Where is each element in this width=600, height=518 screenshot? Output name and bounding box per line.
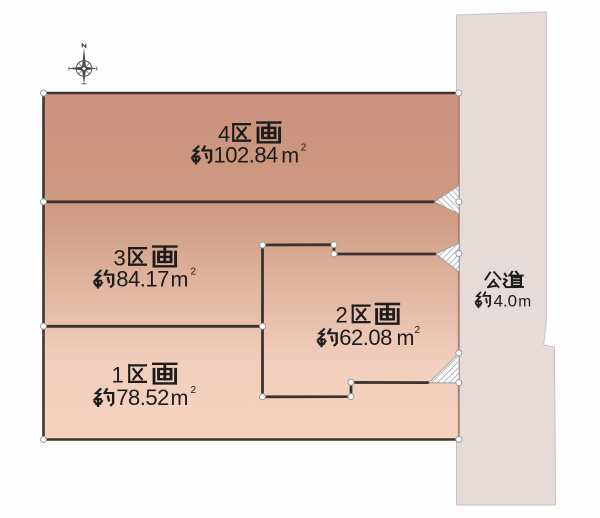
svg-text:m: m — [171, 386, 189, 410]
svg-text:2: 2 — [336, 303, 348, 328]
svg-text:m: m — [397, 326, 415, 350]
svg-text:78.52: 78.52 — [116, 385, 169, 410]
svg-text:m: m — [518, 293, 531, 310]
svg-text:2: 2 — [191, 267, 197, 278]
svg-text:102.84: 102.84 — [214, 142, 279, 167]
svg-text:4.0: 4.0 — [494, 291, 518, 310]
svg-text:2: 2 — [191, 385, 197, 396]
svg-text:2: 2 — [301, 142, 307, 153]
svg-text:84.17: 84.17 — [116, 267, 169, 292]
svg-text:m: m — [281, 143, 299, 167]
svg-text:1: 1 — [112, 363, 124, 388]
svg-text:62.08: 62.08 — [339, 325, 392, 350]
svg-text:m: m — [171, 268, 189, 292]
svg-text:2: 2 — [415, 325, 421, 336]
